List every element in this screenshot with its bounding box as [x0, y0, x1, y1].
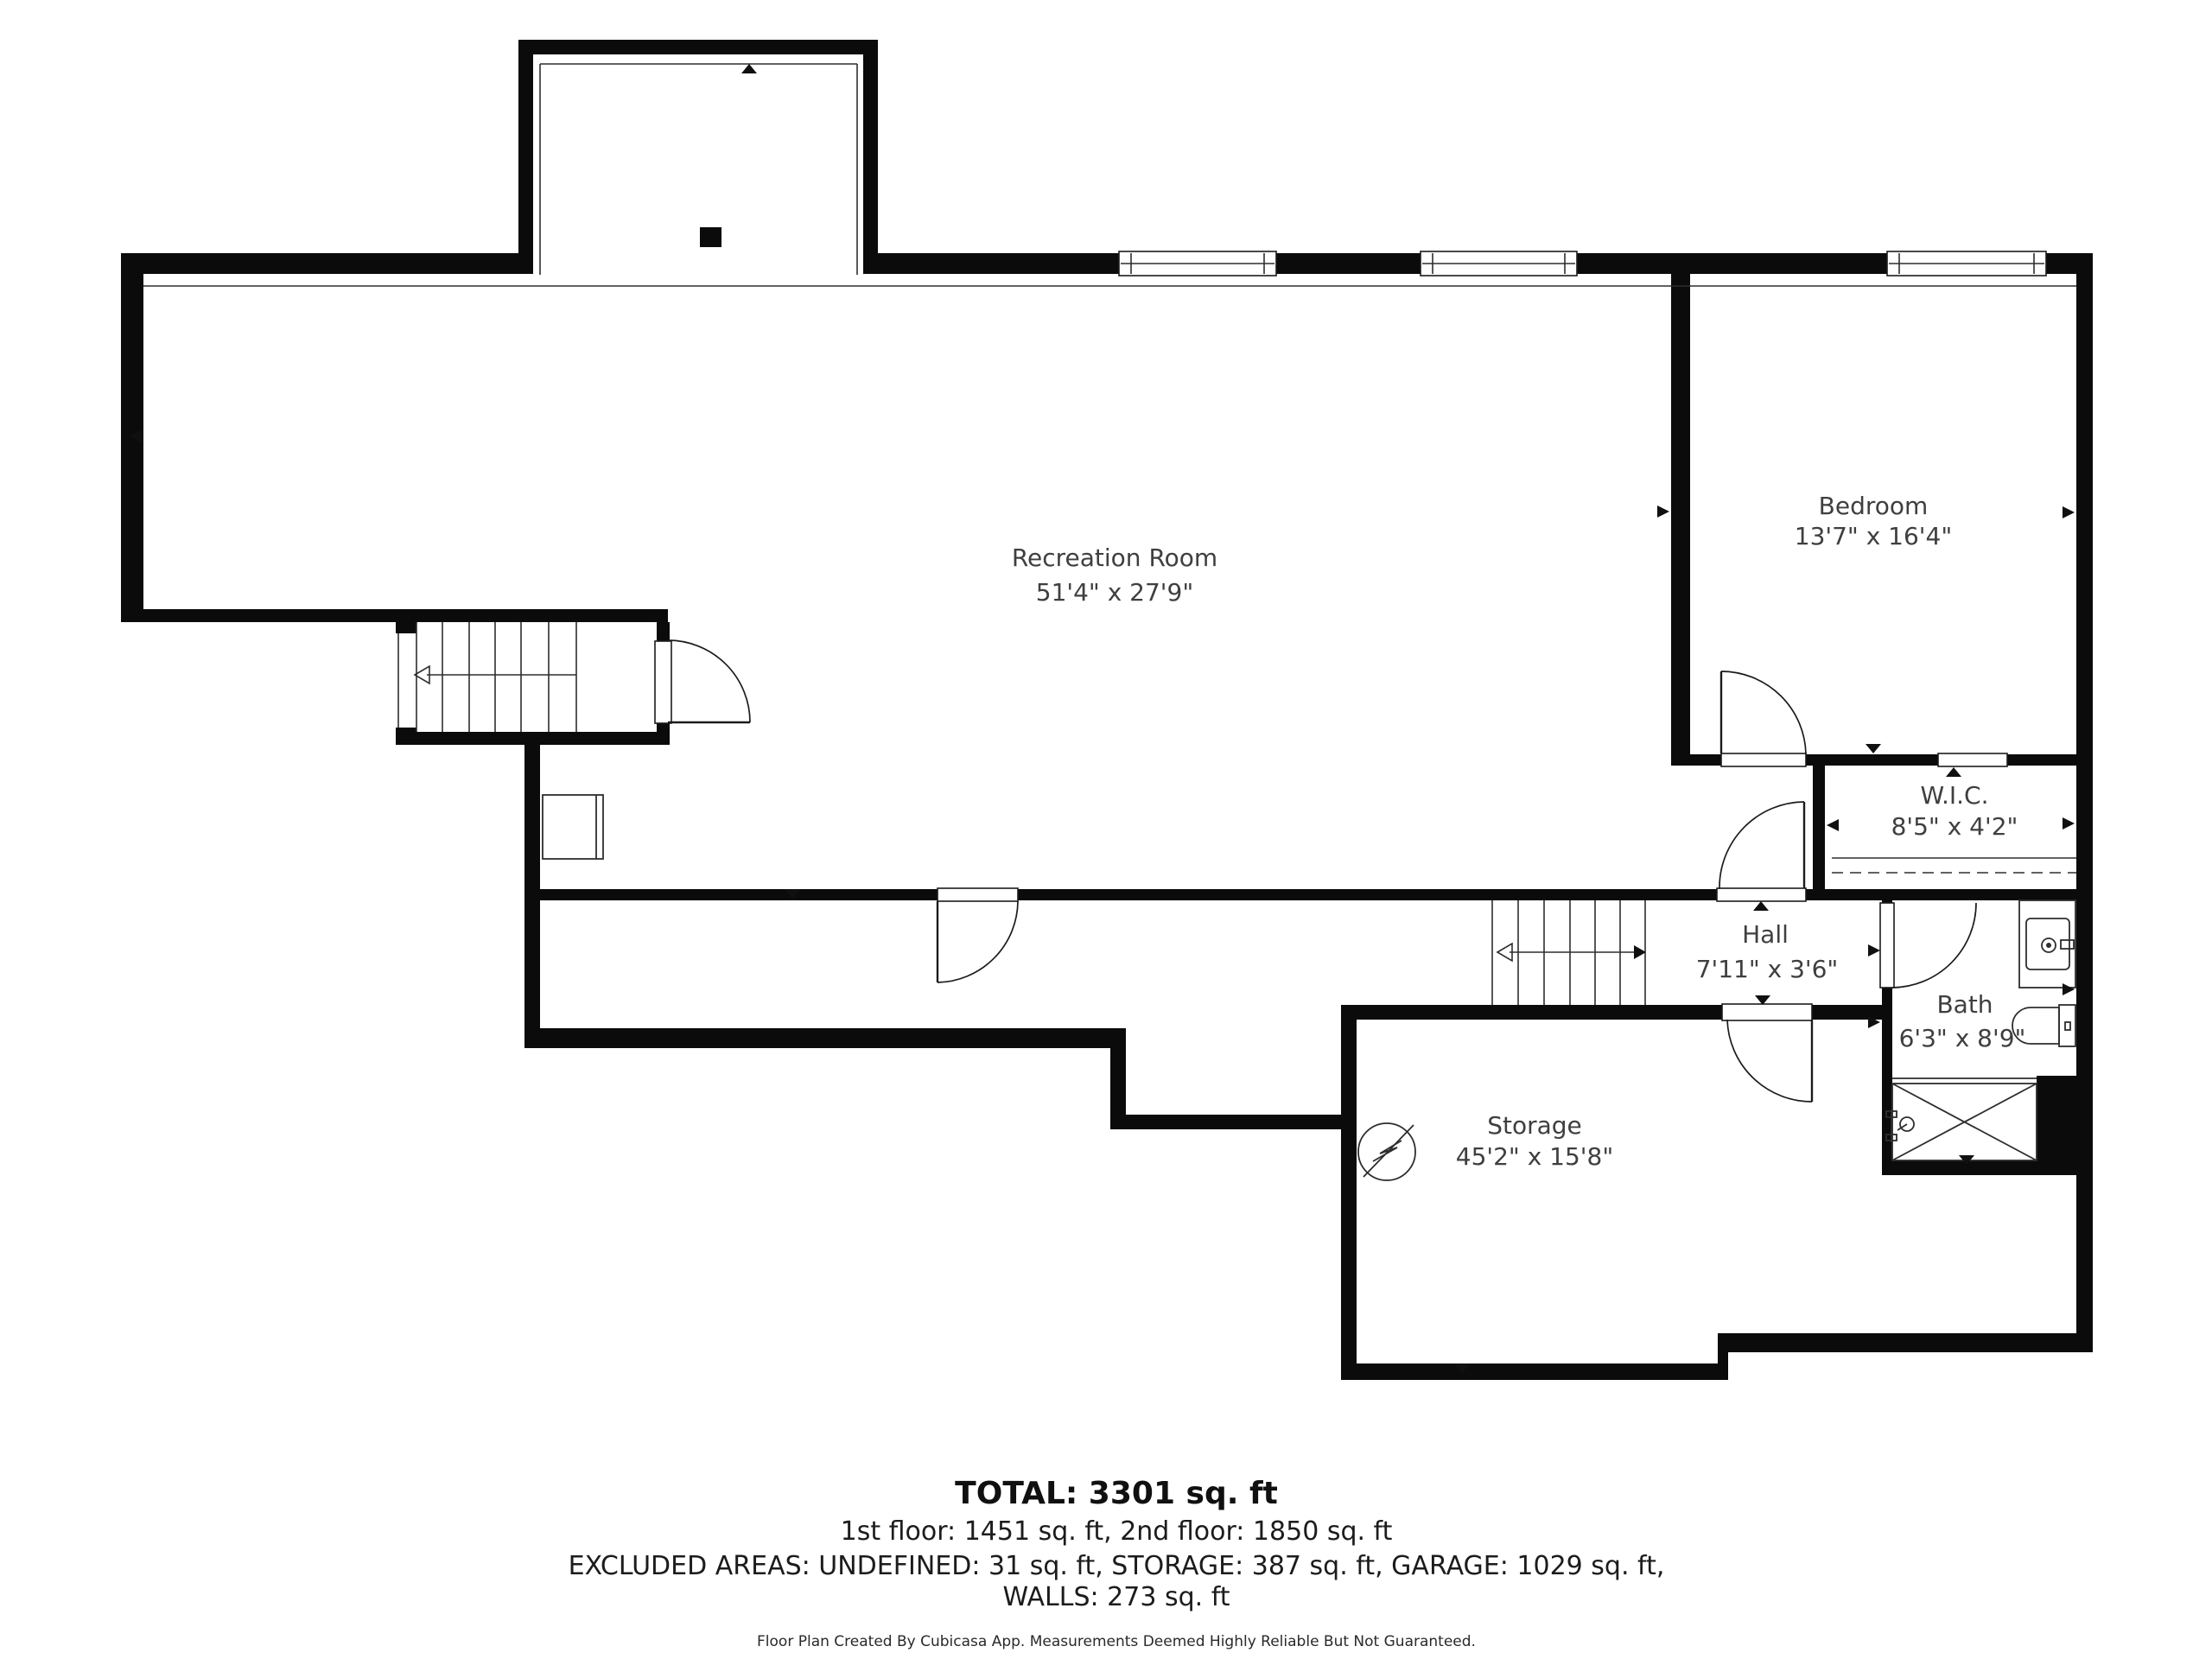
room-label-recreation-room: Recreation Room 51'4" x 27'9"	[1012, 543, 1217, 607]
staircase-hall	[1492, 900, 1646, 1005]
total-area: TOTAL: 3301 sq. ft	[955, 1476, 1278, 1511]
room-dimensions: 45'2" x 15'8"	[1456, 1142, 1613, 1171]
floor-areas: 1st floor: 1451 sq. ft, 2nd floor: 1850 …	[841, 1516, 1393, 1547]
bathroom-sink	[2019, 900, 2075, 988]
door-hall-to-storage	[1722, 1004, 1812, 1102]
room-name: Bath	[1936, 990, 1993, 1019]
area-summary: TOTAL: 3301 sq. ft 1st floor: 1451 sq. f…	[569, 1476, 1665, 1612]
electrical-symbol	[1358, 1123, 1415, 1180]
room-dimensions: 51'4" x 27'9"	[1036, 578, 1193, 607]
door-bedroom	[1721, 671, 1806, 766]
room-label-storage: Storage 45'2" x 15'8"	[1456, 1111, 1613, 1171]
structural-chase	[2037, 1076, 2093, 1175]
door-recroom-from-stairs	[655, 640, 750, 723]
room-dimensions: 6'3" x 8'9"	[1899, 1024, 2026, 1052]
window	[1421, 251, 1577, 276]
room-dimensions: 8'5" x 4'2"	[1891, 812, 2018, 841]
fireplace-column	[700, 227, 721, 247]
room-name: W.I.C.	[1921, 781, 1989, 810]
bay-inner-outline	[540, 64, 857, 275]
window	[1119, 251, 1276, 276]
appliance-box	[543, 795, 603, 859]
floor-plan-page: Recreation Room 51'4" x 27'9" Bedroom 13…	[0, 0, 2212, 1659]
room-dimensions: 13'7" x 16'4"	[1795, 522, 1952, 550]
walls-area: WALLS: 273 sq. ft	[1003, 1582, 1230, 1612]
door-recroom-to-hall	[938, 888, 1018, 982]
floor-plan-canvas: Recreation Room 51'4" x 27'9" Bedroom 13…	[0, 0, 2212, 1659]
room-name: Hall	[1742, 920, 1789, 949]
room-label-bath: Bath 6'3" x 8'9"	[1899, 990, 2026, 1052]
disclaimer-text: Floor Plan Created By Cubicasa App. Meas…	[757, 1633, 1476, 1650]
door-bath	[1880, 903, 1976, 988]
excluded-areas: EXCLUDED AREAS: UNDEFINED: 31 sq. ft, ST…	[569, 1551, 1665, 1581]
staircase-left	[398, 622, 576, 732]
room-dimensions: 7'11" x 3'6"	[1696, 955, 1839, 983]
room-label-hall: Hall 7'11" x 3'6"	[1696, 920, 1839, 983]
shower	[1886, 1078, 2037, 1160]
room-label-bedroom: Bedroom 13'7" x 16'4"	[1795, 492, 1952, 550]
door-hall-to-vestibule	[1717, 802, 1806, 901]
opening-wic-entry	[1938, 753, 2007, 766]
room-label-wic: W.I.C. 8'5" x 4'2"	[1891, 781, 2018, 841]
room-name: Bedroom	[1819, 492, 1929, 520]
room-name: Storage	[1487, 1111, 1582, 1140]
stair-arrow-end	[1634, 945, 1646, 959]
room-name: Recreation Room	[1012, 543, 1217, 572]
closet-rod	[1832, 858, 2076, 873]
window	[1887, 251, 2046, 276]
